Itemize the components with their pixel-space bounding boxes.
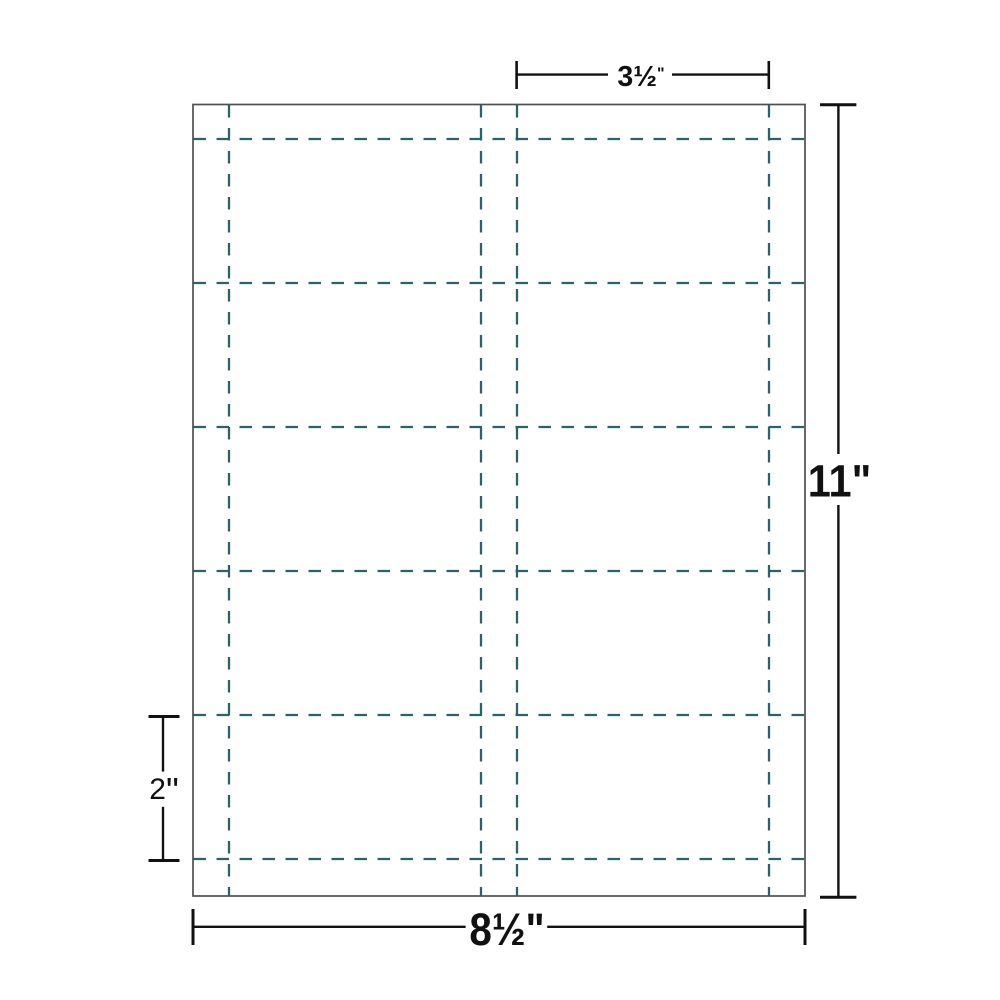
- svg-text:8½": 8½": [469, 905, 544, 956]
- svg-text:3½": 3½": [617, 61, 664, 93]
- svg-text:11": 11": [808, 457, 872, 507]
- svg-text:2": 2": [149, 770, 178, 811]
